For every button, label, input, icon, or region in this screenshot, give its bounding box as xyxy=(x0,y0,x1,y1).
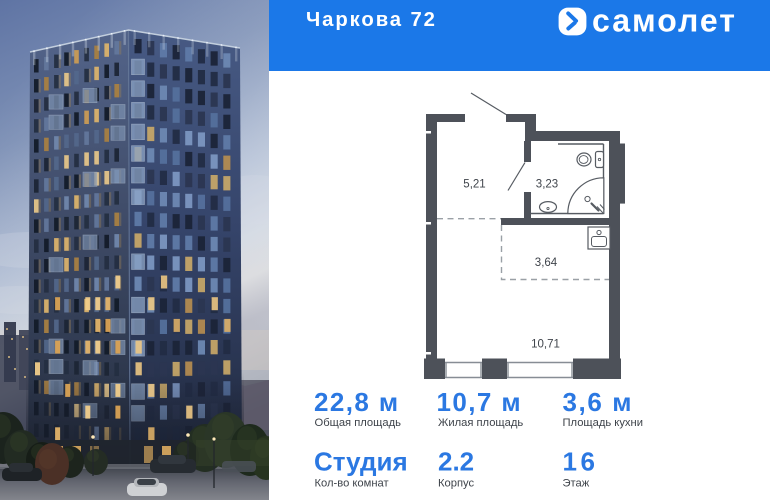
svg-text:5,21: 5,21 xyxy=(463,179,485,191)
svg-text:3,23: 3,23 xyxy=(536,179,558,191)
svg-text:Общая площадь: Общая площадь xyxy=(315,417,402,429)
svg-text:3,64: 3,64 xyxy=(535,257,558,269)
svg-text:Жилая площадь: Жилая площадь xyxy=(438,417,523,429)
svg-text:10,71: 10,71 xyxy=(531,339,560,351)
svg-text:Этаж: Этаж xyxy=(563,477,590,489)
svg-text:Чаркова 72: Чаркова 72 xyxy=(306,9,437,31)
svg-text:2.2: 2.2 xyxy=(438,447,474,477)
svg-text:Площадь кухни: Площадь кухни xyxy=(563,417,643,429)
svg-text:Корпус: Корпус xyxy=(438,477,474,489)
svg-text:3,6 м: 3,6 м xyxy=(563,387,634,417)
svg-text:10,7 м: 10,7 м xyxy=(437,387,522,417)
svg-text:самолет: самолет xyxy=(592,3,737,39)
svg-text:Кол-во комнат: Кол-во комнат xyxy=(315,477,389,489)
svg-text:Студия: Студия xyxy=(314,447,408,477)
svg-text:16: 16 xyxy=(563,447,599,477)
svg-text:22,8 м: 22,8 м xyxy=(314,387,399,417)
